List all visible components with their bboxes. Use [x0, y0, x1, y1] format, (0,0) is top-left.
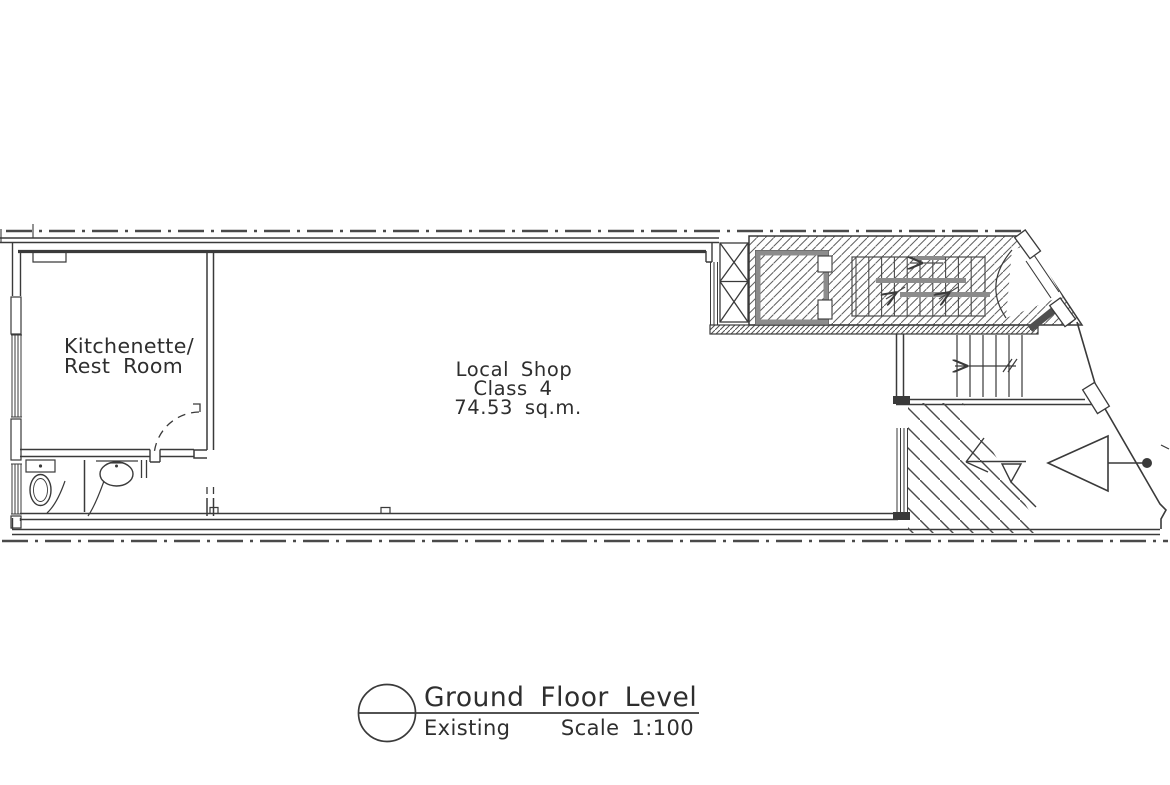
shop-label-area: 74.53 sq.m.	[454, 396, 582, 419]
wc-area	[20, 450, 194, 517]
wc-door-swing-2	[88, 481, 104, 516]
title-block: Ground Floor Level Existing Scale 1:100	[358, 682, 699, 742]
kitchenette-divider-wall	[154, 251, 214, 516]
lift-door-notch-top	[818, 256, 832, 272]
lift-shaft	[756, 251, 833, 325]
entrance-arrow	[1048, 436, 1152, 491]
title-status: Existing	[424, 716, 510, 740]
title-heading: Ground Floor Level	[424, 682, 697, 713]
floor-plan-svg: Kitchenette/ Rest Room Local Shop Class …	[0, 0, 1170, 785]
kitchenette-label-line2: Rest Room	[64, 354, 183, 378]
wc-partition-2	[142, 460, 147, 478]
toilet	[26, 460, 55, 506]
external-stairs	[896, 335, 1109, 414]
door-jamb-lower	[1083, 382, 1110, 413]
lift-door-notch-bottom	[818, 300, 832, 319]
ramp-area	[908, 403, 1043, 533]
shop-ne-glazing	[711, 262, 718, 325]
floor-plan-sheet: Kitchenette/ Rest Room Local Shop Class …	[0, 0, 1170, 785]
site-boundary-diagonal	[1077, 322, 1169, 529]
service-shaft-column	[720, 243, 748, 322]
left-wall-windows	[10, 243, 23, 529]
common-area-south-wall	[710, 325, 1038, 334]
room-labels: Kitchenette/ Rest Room Local Shop Class …	[64, 334, 582, 419]
title-scale: Scale 1:100	[561, 716, 694, 740]
washbasin	[96, 461, 138, 486]
